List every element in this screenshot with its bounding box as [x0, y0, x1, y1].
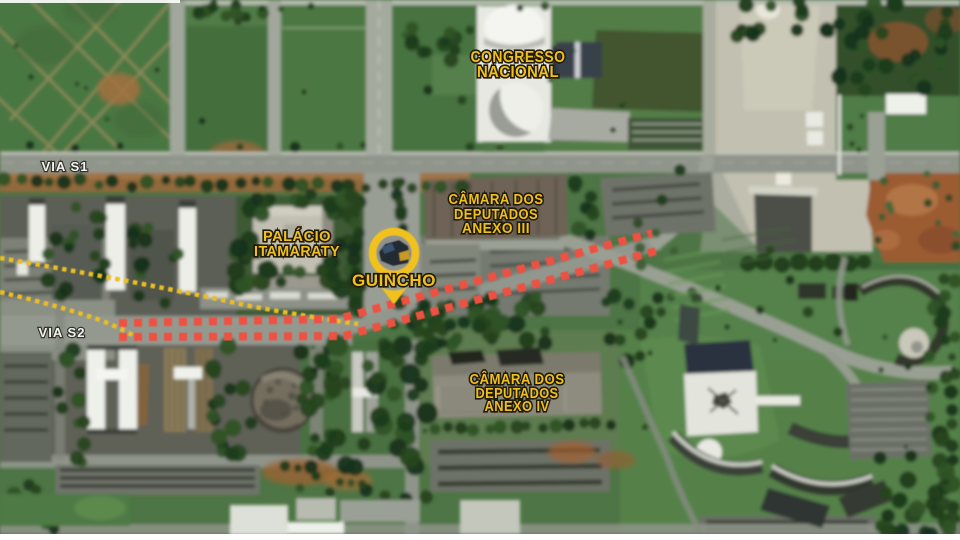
svg-text:PALÁCIO: PALÁCIO [263, 228, 331, 245]
svg-text:ANEXO III: ANEXO III [462, 221, 530, 237]
svg-text:CÂMARA DOS: CÂMARA DOS [449, 190, 544, 208]
svg-text:ITAMARATY: ITAMARATY [254, 244, 340, 260]
svg-text:VIA S1: VIA S1 [42, 159, 89, 174]
svg-text:ANEXO IV: ANEXO IV [485, 399, 550, 415]
svg-text:VIA S2: VIA S2 [39, 325, 86, 340]
svg-text:NACIONAL: NACIONAL [477, 64, 559, 81]
svg-text:GUINCHO: GUINCHO [352, 272, 436, 290]
